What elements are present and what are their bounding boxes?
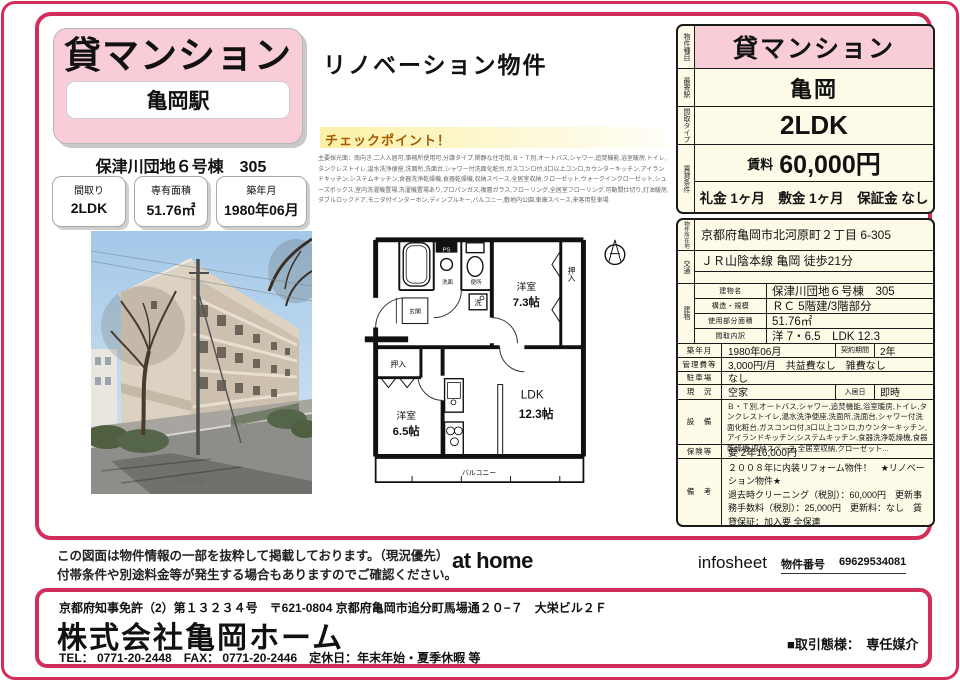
area-row: 使用部分面積 51.76㎡ bbox=[695, 314, 933, 329]
property-number: 物件番号 69629534081 bbox=[781, 556, 906, 574]
detail-row-insurance: 保険等 要 2年16,000円 bbox=[678, 445, 933, 459]
rent-label: 賃料 bbox=[747, 154, 773, 173]
company-contact: TEL： 0771-20-2448 FAX： 0771-20-2446 定休日：… bbox=[59, 649, 480, 666]
spec-label: 築年月 bbox=[224, 182, 299, 197]
property-type-title: 貸マンション bbox=[54, 34, 302, 78]
detail-table: 物件所在地 京都府亀岡市北河原町２丁目 6-305 交通 ＪＲ山陰本線 亀岡 徒… bbox=[676, 218, 935, 527]
equipment-value: Ｂ・Ｔ別,オートバス,シャワー,追焚機能,浴室暖房,トイレ,タンクレストイレ,温… bbox=[722, 400, 933, 444]
status-value: 空家 bbox=[722, 385, 835, 399]
toilet-label: 便所 bbox=[471, 278, 482, 286]
infosheet-row: infosheet 物件番号 69629534081 bbox=[698, 553, 906, 574]
detail-row-parking: 駐車場 なし bbox=[678, 372, 933, 385]
property-type-banner: 貸マンション 亀岡駅 bbox=[53, 28, 303, 144]
row-label: 交通 bbox=[678, 251, 695, 283]
closet-b-label: 押入 bbox=[390, 359, 406, 369]
building-name-row: 建物名 保津川団地６号棟 305 bbox=[695, 284, 933, 299]
detail-row-status: 現 況 空家 入居日 即時 bbox=[678, 385, 933, 400]
fees-line: 礼金 1ヶ月 敷金 1ヶ月 保証金 なし bbox=[695, 182, 933, 212]
address-value: 京都府亀岡市北河原町２丁目 6-305 bbox=[695, 220, 933, 249]
spec-box-built: 築年月 1980年06月 bbox=[216, 176, 307, 227]
station-value: 亀岡 bbox=[695, 69, 933, 106]
ldk-size: 12.3帖 bbox=[519, 407, 554, 421]
remarks-value: ２００８年に内装リフォーム物件！ ★リノベーション物件★ 退去時クリーニング（税… bbox=[722, 459, 933, 525]
layout-value: 2LDK bbox=[695, 107, 933, 144]
sub-label: 使用部分面積 bbox=[695, 314, 767, 328]
spec-value: 2LDK bbox=[60, 200, 118, 216]
row-label: 賃貸条件 bbox=[678, 145, 695, 212]
sub-label: 建物名 bbox=[695, 284, 767, 298]
row-label: 設 備 bbox=[678, 400, 722, 444]
mgmt-value: 3,000円/月 共益費なし 雑費なし bbox=[722, 358, 933, 371]
row-label: 最寄駅 bbox=[678, 69, 695, 106]
transaction-type: ■取引態様： 専任媒介 bbox=[787, 634, 918, 653]
spec-box-area: 専有面積 51.76㎡ bbox=[134, 176, 208, 227]
balcony-label: バルコニー bbox=[462, 469, 496, 477]
contract-label: 契約期間 bbox=[835, 344, 875, 357]
row-label: 備 考 bbox=[678, 459, 722, 525]
row-label: 現 況 bbox=[678, 385, 722, 399]
detail-row-mgmt: 管理費等 3,000円/月 共益費なし 雑費なし bbox=[678, 358, 933, 372]
pipe-space-label: PS bbox=[443, 248, 451, 254]
room-b-size: 6.5帖 bbox=[393, 424, 421, 438]
area-value: 51.76㎡ bbox=[767, 314, 933, 328]
detail-row-remarks: 備 考 ２００８年に内装リフォーム物件！ ★リノベーション物件★ 退去時クリーニ… bbox=[678, 459, 933, 525]
layout-detail-row: 間取内訳 洋 7・6.5 LDK 12.3 bbox=[695, 329, 933, 343]
built-value: 1980年06月 bbox=[722, 344, 835, 357]
laundry-label: 洗 bbox=[475, 298, 482, 307]
structure-row: 構造・規模 ＲＣ 5階建/3階部分 bbox=[695, 299, 933, 314]
property-number-label: 物件番号 bbox=[781, 556, 825, 572]
spec-value: 1980年06月 bbox=[224, 200, 299, 220]
spec-box-layout: 間取り 2LDK bbox=[52, 176, 126, 227]
summary-table: 物件種目 貸マンション 最寄駅 亀岡 間取タイプ 2LDK 賃貸条件 賃料 60… bbox=[676, 24, 935, 214]
disclaimer-line-1: この図面は物件情報の一部を抜粋して掲載しております。（現況優先） bbox=[57, 547, 457, 566]
summary-row-layout: 間取タイプ 2LDK bbox=[678, 107, 933, 145]
entrance-label: 玄関 bbox=[409, 308, 421, 316]
rent-value: 60,000円 bbox=[779, 145, 880, 181]
movein-label: 入居日 bbox=[835, 385, 875, 399]
summary-row-terms: 賃貸条件 賃料 60,000円 礼金 1ヶ月 敷金 1ヶ月 保証金 なし bbox=[678, 145, 933, 212]
floor-plan: 洋室 7.3帖 押入 押入 洋室 6.5帖 LDK 12.3帖 バルコニー 玄関… bbox=[362, 229, 666, 487]
detail-row-built: 築年月 1980年06月 契約期間 2年 bbox=[678, 344, 933, 358]
room-b-label: 洋室 bbox=[396, 409, 416, 422]
ldk-label: LDK bbox=[521, 387, 544, 401]
spec-value: 51.76㎡ bbox=[142, 200, 200, 220]
row-label: 建物 bbox=[678, 284, 695, 343]
spec-label: 間取り bbox=[60, 182, 118, 197]
row-label: 間取タイプ bbox=[678, 107, 695, 144]
disclaimer-line-2: 付帯条件や別途料金等が発生する場合もありますのでご確認ください。 bbox=[57, 566, 457, 585]
room-a-label: 洋室 bbox=[516, 280, 536, 293]
detail-row-address: 物件所在地 京都府亀岡市北河原町２丁目 6-305 bbox=[678, 220, 933, 251]
summary-row-station: 最寄駅 亀岡 bbox=[678, 69, 933, 107]
detail-row-building: 建物 建物名 保津川団地６号棟 305 構造・規模 ＲＣ 5階建/3階部分 使用… bbox=[678, 284, 933, 344]
movein-value: 即時 bbox=[875, 385, 933, 399]
station-badge: 亀岡駅 bbox=[66, 81, 290, 119]
type-value: 貸マンション bbox=[695, 26, 933, 68]
spec-boxes: 間取り 2LDK 専有面積 51.76㎡ 築年月 1980年06月 bbox=[52, 176, 307, 227]
terms-values: 賃料 60,000円 礼金 1ヶ月 敷金 1ヶ月 保証金 なし bbox=[695, 145, 933, 212]
parking-value: なし bbox=[722, 372, 933, 384]
disclaimer: この図面は物件情報の一部を抜粋して掲載しております。（現況優先） 付帯条件や別途… bbox=[57, 547, 457, 585]
access-value-2 bbox=[695, 272, 933, 283]
structure-value: ＲＣ 5階建/3階部分 bbox=[767, 299, 933, 313]
insurance-value: 要 2年16,000円 bbox=[722, 445, 933, 458]
feature-list: 主要採光面：南向き,二人入居可,事務所使用可,分譲タイプ,閑静な住宅街,Ｂ・Ｔ別… bbox=[318, 154, 670, 207]
row-label: 駐車場 bbox=[678, 372, 722, 384]
washroom-label: 洗面 bbox=[442, 278, 453, 286]
sub-label: 構造・規模 bbox=[695, 299, 767, 313]
infosheet-label: infosheet bbox=[698, 553, 767, 573]
spec-label: 専有面積 bbox=[142, 182, 200, 197]
rent-line: 賃料 60,000円 bbox=[695, 145, 933, 182]
row-label: 物件種目 bbox=[678, 26, 695, 68]
row-label: 管理費等 bbox=[678, 358, 722, 371]
main-frame: 貸マンション 亀岡駅 保津川団地６号棟 305 間取り 2LDK 専有面積 51… bbox=[35, 12, 932, 540]
building-name: 保津川団地６号棟 305 bbox=[767, 284, 933, 298]
contract-value: 2年 bbox=[875, 344, 933, 357]
summary-row-type: 物件種目 貸マンション bbox=[678, 26, 933, 69]
room-a-size: 7.3帖 bbox=[513, 295, 541, 309]
access-value: ＪＲ山陰本線 亀岡 徒歩21分 bbox=[695, 251, 933, 272]
renovation-title: リノベーション物件 bbox=[323, 46, 548, 80]
company-frame: 京都府知事免許（2）第１３２３４号 〒621-0804 京都府亀岡市追分町馬場通… bbox=[35, 588, 932, 668]
closet-a-label: 押入 bbox=[567, 265, 576, 282]
row-label: 物件所在地 bbox=[678, 220, 695, 250]
athome-logo: at home bbox=[452, 548, 533, 574]
property-number-value: 69629534081 bbox=[839, 556, 906, 572]
row-label: 築年月 bbox=[678, 344, 722, 357]
detail-row-equipment: 設 備 Ｂ・Ｔ別,オートバス,シャワー,追焚機能,浴室暖房,トイレ,タンクレスト… bbox=[678, 400, 933, 445]
layout-detail-value: 洋 7・6.5 LDK 12.3 bbox=[767, 329, 933, 343]
detail-row-access: 交通 ＪＲ山陰本線 亀岡 徒歩21分 bbox=[678, 251, 933, 284]
building-photo bbox=[91, 231, 312, 494]
row-label: 保険等 bbox=[678, 445, 722, 458]
checkpoint-banner: チェックポイント！ bbox=[320, 127, 667, 148]
sub-label: 間取内訳 bbox=[695, 329, 767, 343]
property-name: 保津川団地６号棟 305 bbox=[47, 153, 315, 177]
